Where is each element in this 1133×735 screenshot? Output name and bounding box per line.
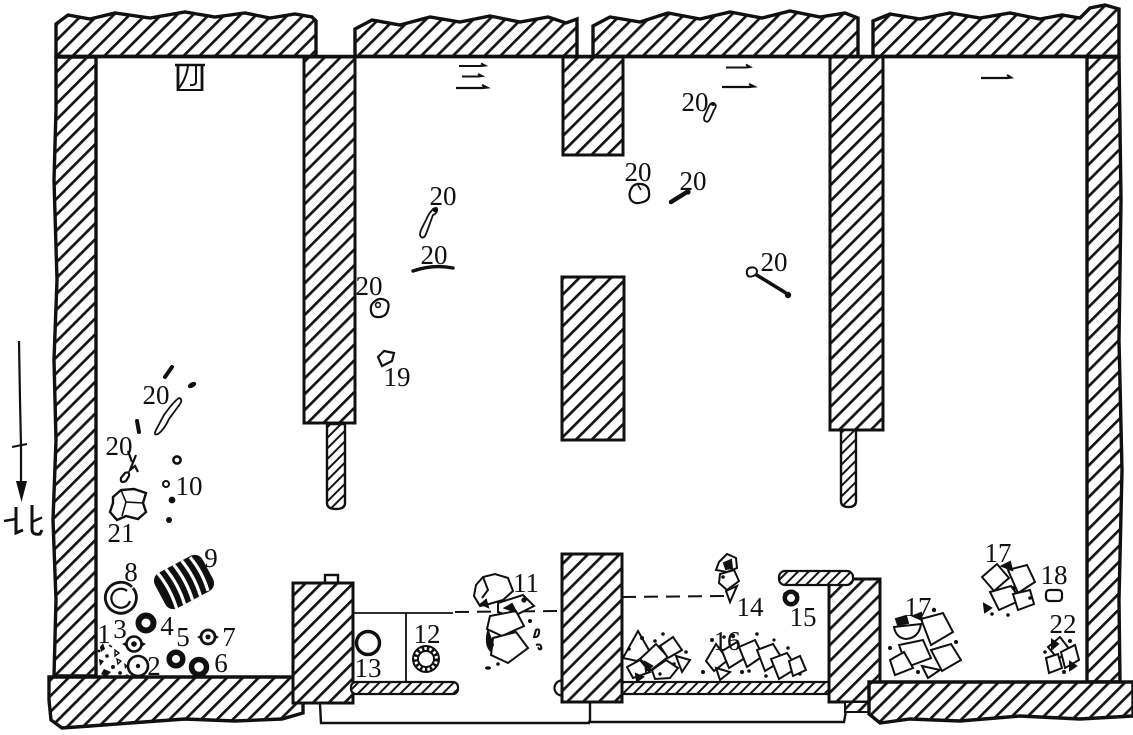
svg-text:20: 20: [356, 271, 383, 301]
svg-text:18: 18: [1041, 560, 1068, 590]
svg-text:20: 20: [421, 240, 448, 270]
svg-text:20: 20: [625, 157, 652, 187]
svg-text:13: 13: [355, 653, 382, 683]
svg-text:20: 20: [682, 87, 709, 117]
svg-text:6: 6: [214, 648, 228, 678]
svg-text:4: 4: [160, 611, 174, 641]
svg-text:17: 17: [985, 538, 1012, 568]
svg-text:5: 5: [176, 622, 190, 652]
svg-text:12: 12: [414, 619, 441, 649]
svg-text:9: 9: [204, 543, 218, 573]
svg-text:16: 16: [714, 626, 741, 656]
svg-text:8: 8: [124, 557, 138, 587]
svg-text:20: 20: [143, 380, 170, 410]
svg-text:17: 17: [905, 592, 932, 622]
svg-text:20: 20: [761, 247, 788, 277]
svg-text:11: 11: [513, 568, 539, 598]
svg-text:3: 3: [113, 614, 127, 644]
svg-text:10: 10: [176, 471, 203, 501]
svg-text:2: 2: [147, 651, 161, 681]
svg-text:20: 20: [430, 181, 457, 211]
svg-text:20: 20: [106, 431, 133, 461]
svg-text:21: 21: [108, 518, 135, 548]
svg-text:20: 20: [680, 166, 707, 196]
svg-text:14: 14: [737, 592, 765, 622]
svg-text:1: 1: [97, 619, 111, 649]
svg-text:22: 22: [1050, 609, 1077, 639]
svg-text:15: 15: [790, 602, 817, 632]
svg-text:19: 19: [384, 362, 411, 392]
